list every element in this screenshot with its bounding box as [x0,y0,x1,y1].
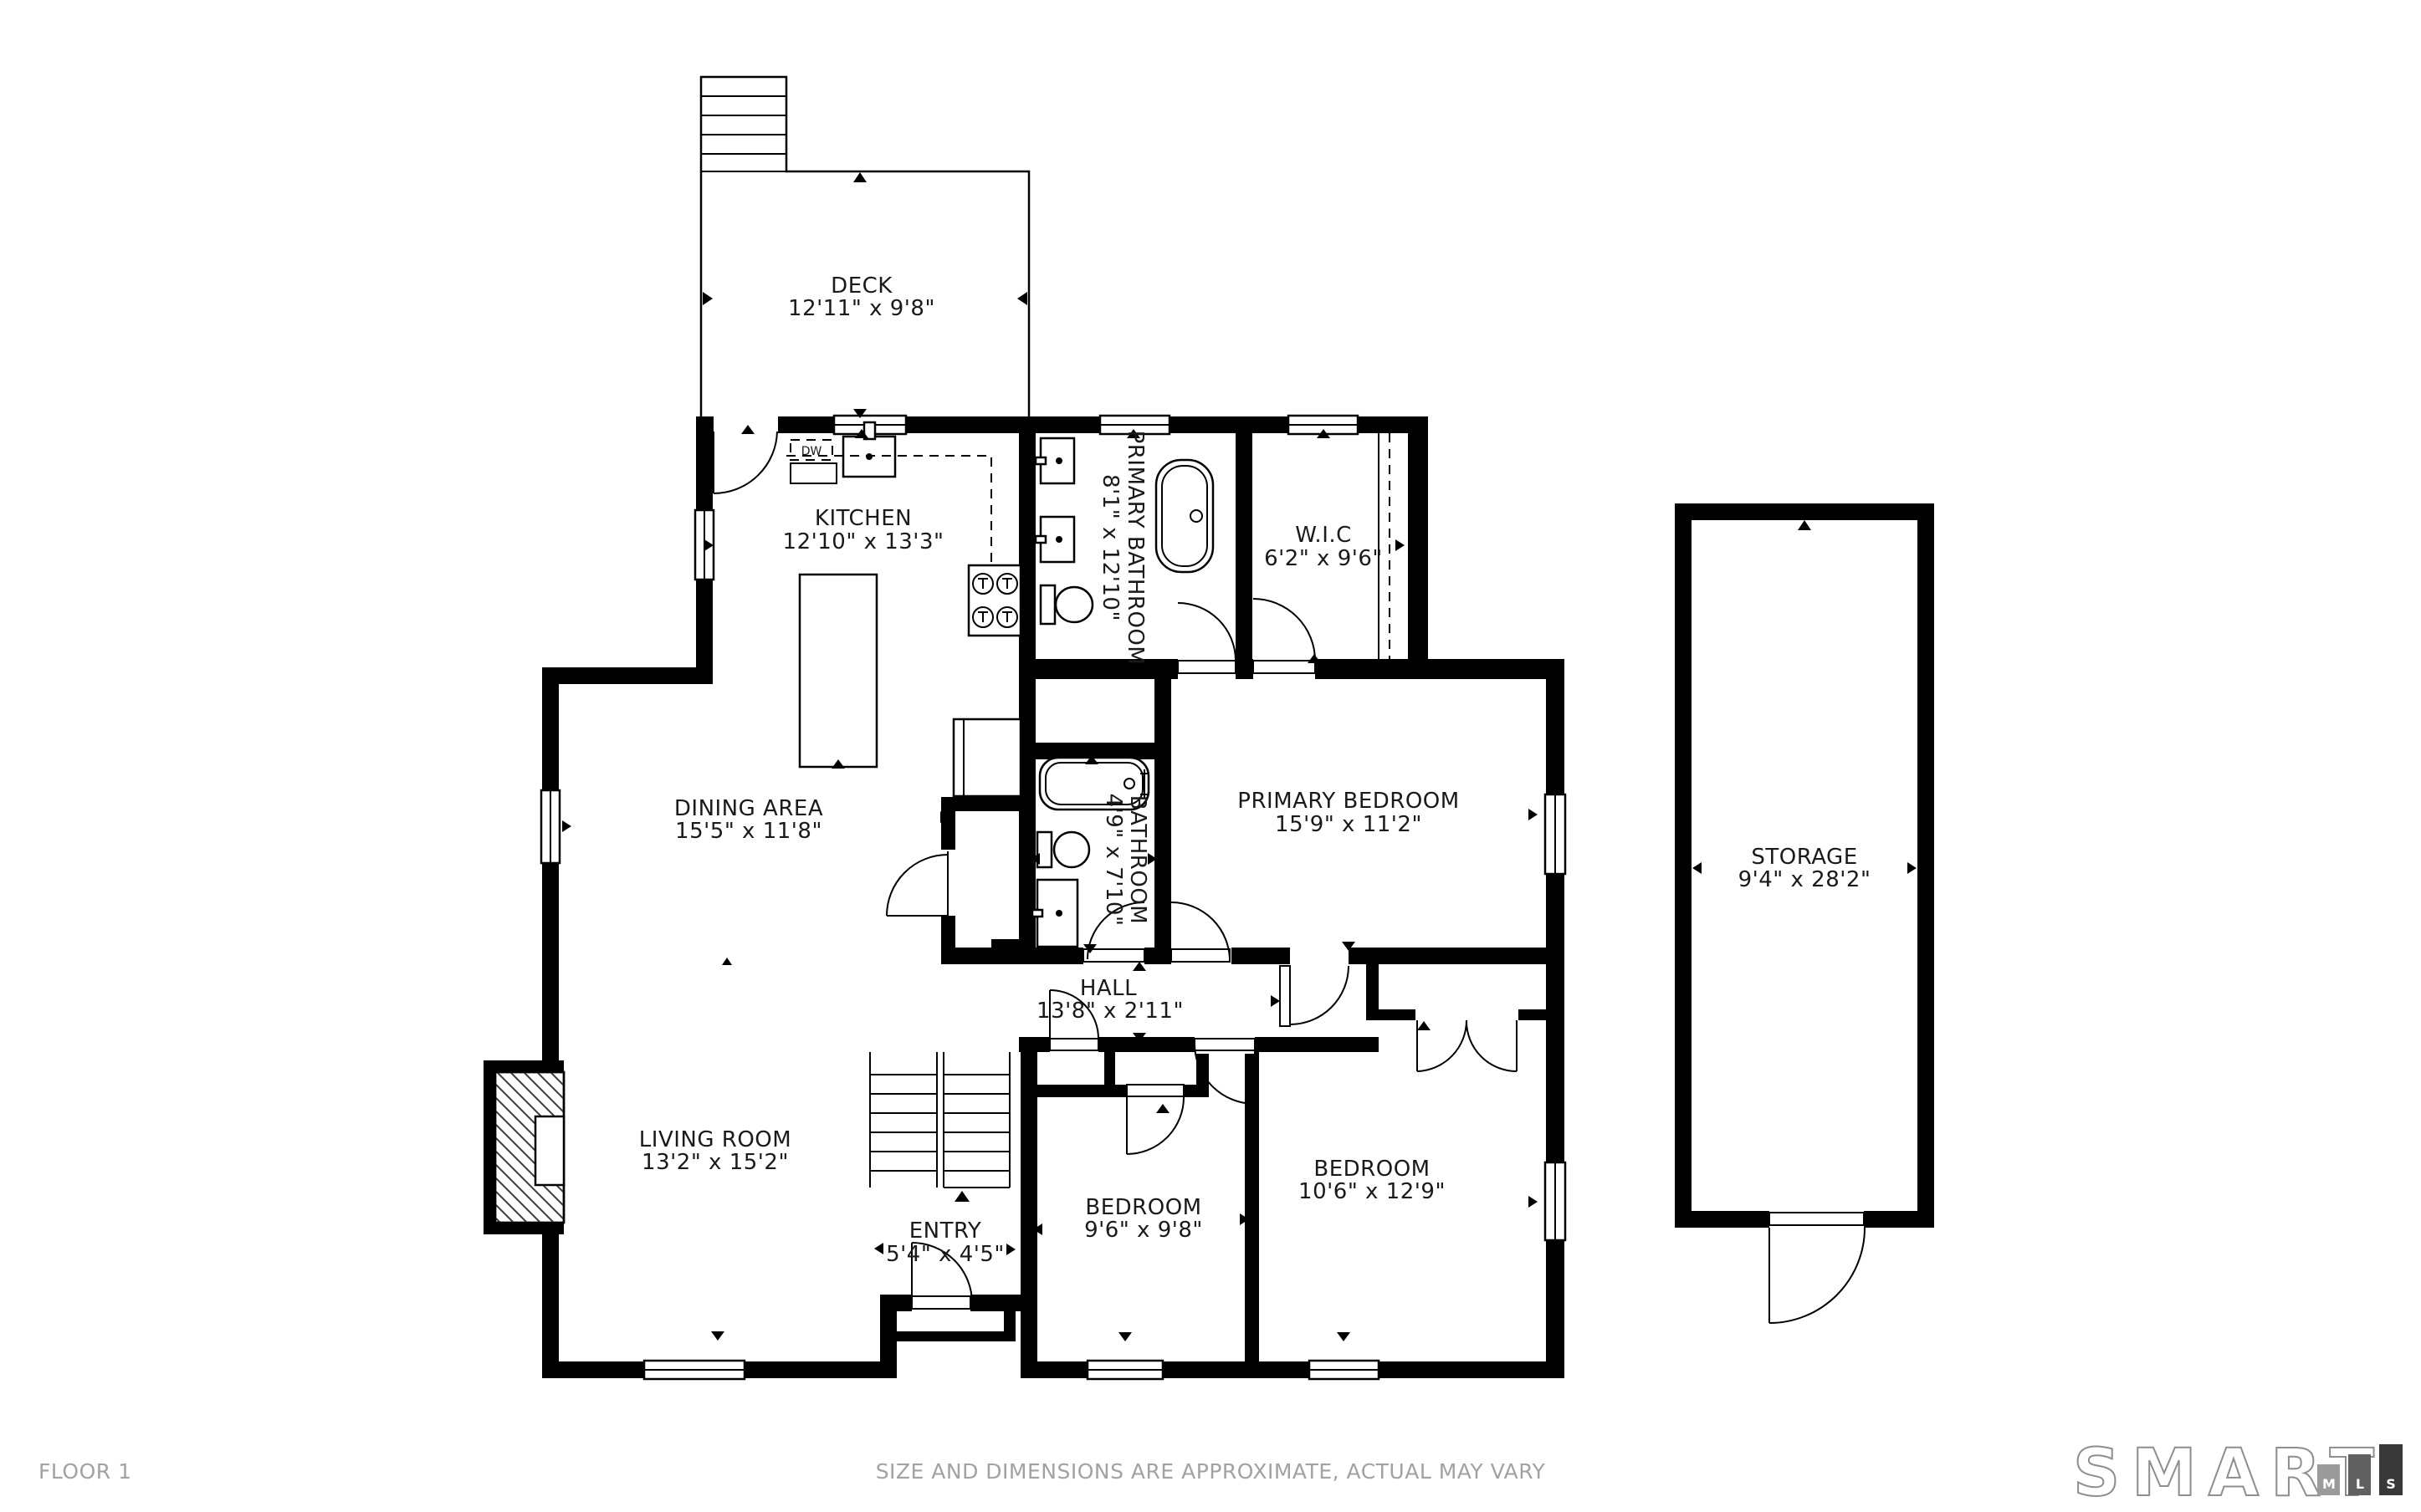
dishwasher: DW [791,440,837,483]
window-bedroom2-south [1309,1361,1379,1379]
room-label-wic: W.I.C [1295,523,1352,548]
svg-text:M: M [2322,1476,2336,1492]
closet-double-doors [1417,1020,1517,1071]
vanity-sink-1 [1036,438,1074,483]
door-pantry-closet [887,851,948,916]
room-dims-wic: 6'2" x 9'6" [1264,546,1383,571]
room-dims-bathroom: 4'9" x 7'10" [1101,794,1126,927]
refrigerator [954,719,1021,796]
door-wic [1253,599,1315,673]
floor-label: FLOOR 1 [38,1459,132,1484]
room-label-dining: DINING AREA [674,796,823,821]
room-dims-dining: 15'5" x 11'8" [675,819,822,844]
stove [969,565,1021,636]
window-primary-bedroom-east [1545,794,1565,874]
brand-block-m: M [2317,1464,2340,1495]
door-bedroom1-closet [1127,1085,1184,1154]
room-label-deck: DECK [831,273,893,299]
room-dims-living: 13'2" x 15'2" [642,1150,789,1175]
room-dims-primary-bedroom: 15'9" x 11'2" [1275,812,1422,837]
room-label-primary-bathroom: PRIMARY BATHROOM [1123,431,1148,666]
toilet-primary [1041,585,1093,624]
window-bedroom2-east [1545,1162,1565,1240]
brand-block-s: S [2379,1444,2403,1495]
door-primary-bathroom [1178,603,1236,673]
bathtub-primary [1156,460,1213,572]
window-bedroom1-south [1088,1361,1163,1379]
vanity-sink-2 [1036,517,1074,562]
room-dims-storage: 9'4" x 28'2" [1738,867,1871,892]
room-label-primary-bedroom: PRIMARY BEDROOM [1237,789,1459,814]
floorplan-canvas: DW [0,0,2421,1512]
vanity-small [1032,880,1077,947]
room-dims-kitchen: 12'10" x 13'3" [783,529,944,554]
room-dims-bedroom2: 10'6" x 12'9" [1298,1179,1446,1204]
deck-outline [701,77,1029,416]
disclaimer-text: SIZE AND DIMENSIONS ARE APPROXIMATE, ACT… [876,1459,1546,1484]
room-label-kitchen: KITCHEN [815,506,912,531]
room-dims-deck: 12'11" x 9'8" [788,296,935,321]
window-dining-west [541,790,560,863]
room-label-entry: ENTRY [909,1218,982,1244]
room-label-bedroom1: BEDROOM [1085,1195,1201,1220]
room-dims-hall: 13'8" x 2'11" [1036,999,1184,1024]
room-label-bathroom: BATHROOM [1125,795,1150,924]
smartmls-logo: SMART M L S [2073,1436,2403,1511]
room-label-bedroom2: BEDROOM [1313,1157,1430,1182]
room-dims-entry: 5'4" x 4'5" [886,1242,1005,1267]
door-deck-to-kitchen [714,432,777,493]
brand-block-l: L [2348,1454,2371,1495]
floorplan-page: DW [0,0,2421,1512]
toilet-small [1037,832,1089,867]
entry-stairs [870,1052,1010,1202]
svg-text:L: L [2356,1476,2364,1492]
door-bedroom2 [1280,966,1349,1026]
room-dims-primary-bathroom: 8'1" x 12'10" [1098,474,1123,621]
walls [542,416,1934,1378]
room-label-hall: HALL [1080,976,1137,1001]
kitchen-island [800,575,877,767]
svg-text:S: S [2386,1476,2396,1492]
footer: FLOOR 1 SIZE AND DIMENSIONS ARE APPROXIM… [38,1459,1546,1484]
fireplace [484,1060,564,1234]
kitchen-fixtures: DW [786,422,1021,796]
room-label-living: LIVING ROOM [639,1127,791,1152]
window-living-south [644,1361,745,1379]
room-dims-bedroom1: 9'6" x 9'8" [1084,1218,1203,1243]
door-primary-bedroom [1171,902,1230,962]
room-label-storage: STORAGE [1751,845,1857,870]
